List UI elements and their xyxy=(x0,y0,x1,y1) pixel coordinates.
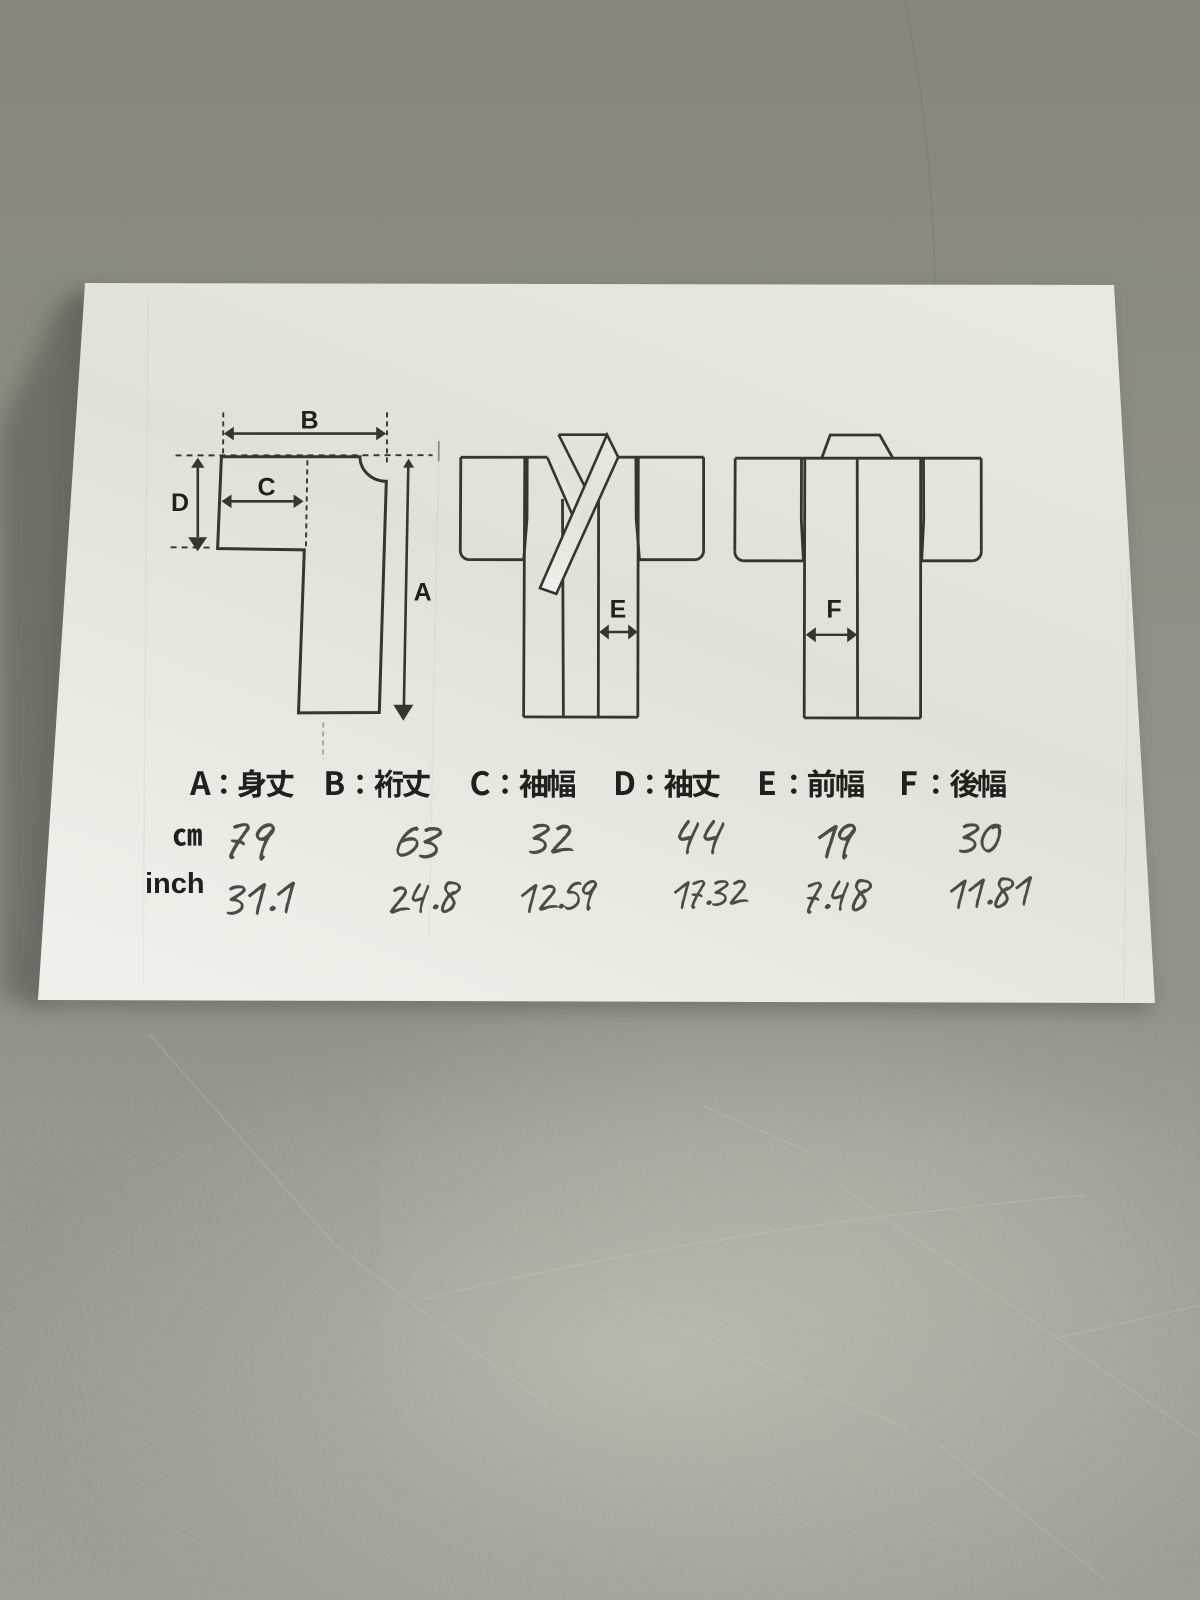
svg-text:B: B xyxy=(300,407,318,435)
svg-text:C: C xyxy=(257,474,275,502)
svg-text:F: F xyxy=(826,596,841,624)
svg-text:E: E xyxy=(610,596,627,624)
svg-text:D: D xyxy=(171,489,189,517)
svg-text:A: A xyxy=(414,579,432,607)
svg-text:inch: inch xyxy=(145,868,205,900)
